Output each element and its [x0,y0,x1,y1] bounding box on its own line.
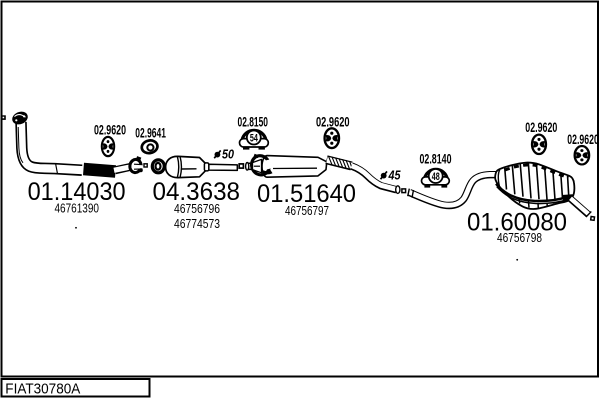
svg-text:02.9620: 02.9620 [525,120,557,135]
svg-text:46774573: 46774573 [174,216,220,231]
svg-text:46756797: 46756797 [285,203,329,218]
svg-text:02.9620: 02.9620 [316,114,350,129]
svg-text:46756796: 46756796 [174,201,220,216]
svg-text:46756798: 46756798 [497,230,542,245]
svg-text:02.9620: 02.9620 [94,123,126,138]
svg-text:02.9641: 02.9641 [135,125,166,140]
svg-text:45: 45 [388,167,401,182]
svg-text:50: 50 [222,146,235,161]
svg-text:54: 54 [250,133,258,145]
svg-text:02.9620: 02.9620 [567,132,599,147]
svg-text:46761390: 46761390 [55,201,100,216]
svg-text:02.8150: 02.8150 [238,115,269,130]
svg-text:FIAT30780A: FIAT30780A [5,381,80,397]
svg-text:48: 48 [432,171,440,183]
svg-text:02.8140: 02.8140 [420,152,452,167]
